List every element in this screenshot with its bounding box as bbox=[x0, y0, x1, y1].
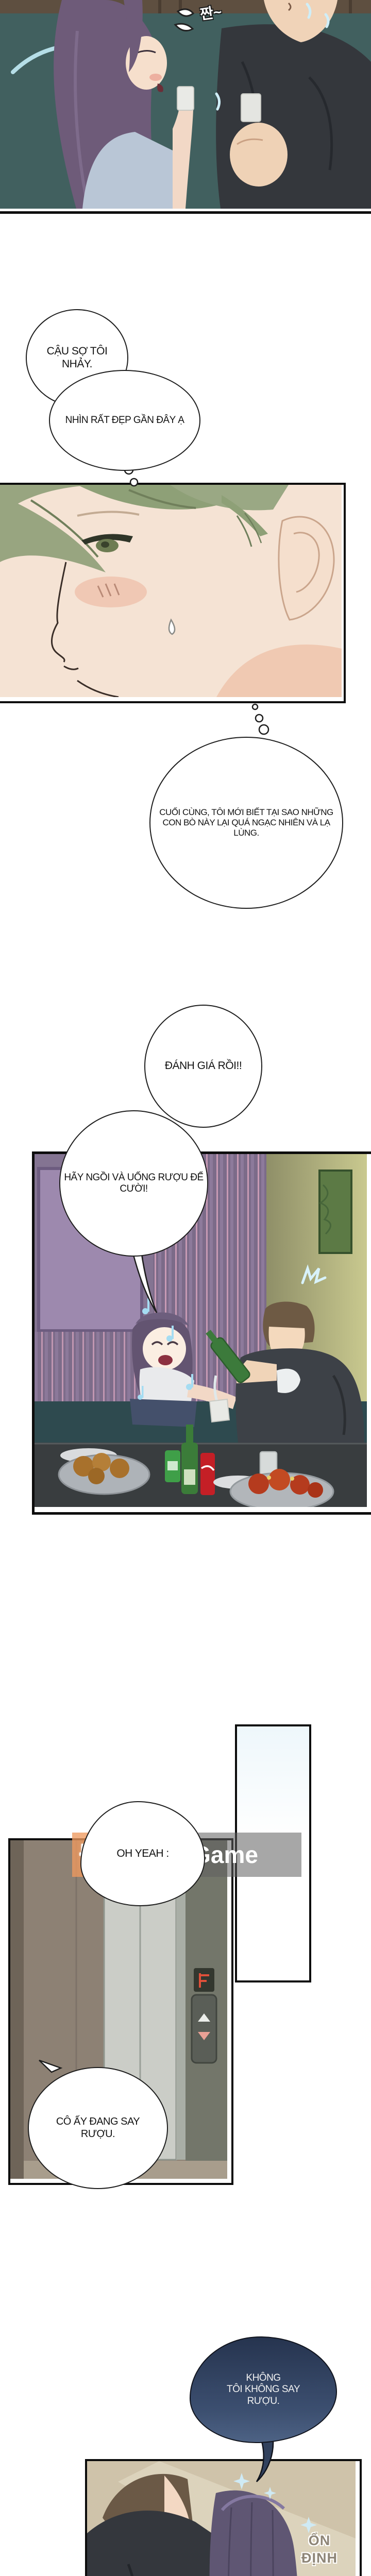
cola-can bbox=[200, 1453, 215, 1495]
webtoon-page: 짠~ bbox=[0, 0, 371, 2576]
sfx-cheers-text: 짠~ bbox=[198, 1, 223, 24]
panel-bar-toast: 짠~ bbox=[0, 0, 371, 214]
speech-bubble-b5: HÃY NGỒI VÀ UỐNG RƯỢU ĐỂ CƯỜI! bbox=[59, 1110, 208, 1257]
speech-bubble-b6: OH YEAH : bbox=[80, 1801, 205, 1906]
blush bbox=[75, 577, 147, 607]
b3-thought-circle bbox=[259, 725, 268, 734]
caption-steady: ỔN ĐỊNH bbox=[289, 2532, 350, 2567]
speech-bubble-b2: NHÌN RẤT ĐẸP GẦN ĐÂY Ạ bbox=[49, 370, 200, 471]
speech-bubble-b7: CÔ ẤY ĐANG SAY RƯỢU. bbox=[28, 2067, 168, 2189]
call-button-plate bbox=[192, 1995, 216, 2063]
painting bbox=[319, 1171, 351, 1253]
b3-thought-circle bbox=[256, 715, 263, 722]
soju-bottle bbox=[181, 1443, 198, 1494]
speech-bubble-b4: ĐÁNH GIÁ RỒI!! bbox=[144, 1005, 262, 1128]
panel-blush-closeup bbox=[0, 483, 346, 703]
panel-bar-toast-art bbox=[0, 0, 371, 209]
b3-thought-circle bbox=[252, 704, 258, 709]
thought-bubble-b3: CUỐI CÙNG, TÔI MỚI BIẾT TẠI SAO NHỮNG CO… bbox=[149, 737, 343, 909]
speech-bubble-b8-drunk: KHÔNG TÔI KHÔNG SAY RƯỢU. bbox=[190, 2336, 337, 2443]
panel-blush-art bbox=[0, 485, 342, 697]
